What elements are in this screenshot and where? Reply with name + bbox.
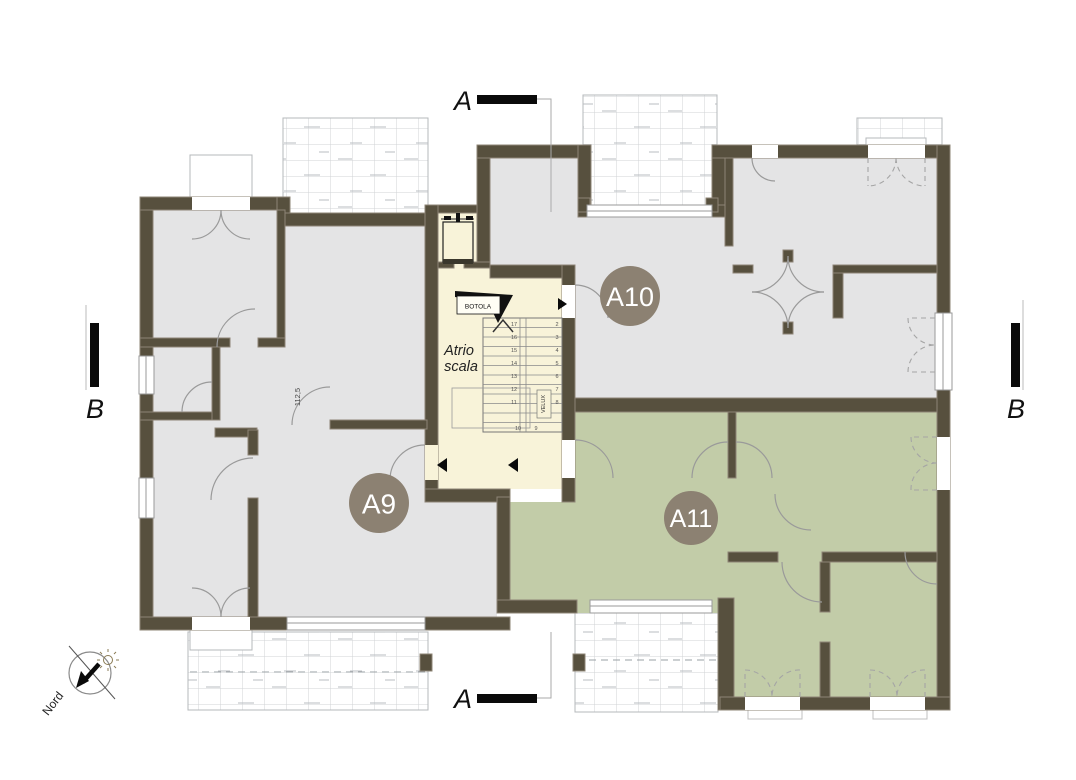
section-a-bottom-bar (477, 694, 537, 703)
svg-text:2: 2 (555, 322, 558, 328)
svg-text:4: 4 (555, 348, 558, 354)
svg-text:15: 15 (511, 348, 517, 354)
terrace-bottom-right (575, 613, 718, 712)
svg-text:6: 6 (555, 374, 558, 380)
botola-label: BOTOLA (465, 304, 492, 311)
elevator-door-mark-center (456, 213, 460, 222)
north-compass-icon: Nord (39, 646, 119, 718)
svg-text:16: 16 (511, 335, 517, 341)
svg-text:11: 11 (511, 400, 517, 406)
svg-text:13: 13 (511, 374, 517, 380)
section-b-right-bar (1011, 323, 1020, 387)
landing-top-left (190, 155, 252, 197)
a9-label: A9 (362, 489, 396, 520)
velux-label: VELUX (541, 395, 547, 413)
landing-bottom-right-1 (748, 710, 802, 719)
svg-text:14: 14 (511, 361, 517, 367)
section-a-top-bar (477, 95, 537, 104)
terrace-top-middle (583, 95, 717, 207)
svg-text:7: 7 (555, 387, 558, 393)
section-b-right-label: B (1007, 394, 1025, 424)
svg-text:5: 5 (555, 361, 558, 367)
atrio-scala-label: Atrio scala (443, 343, 478, 375)
landing-bottom-left (190, 630, 252, 650)
floor-plan-svg: BOTOLA VELUX 17 16 15 14 13 12 11 2 3 4 … (0, 0, 1076, 780)
section-a-bottom-label: A (452, 684, 472, 714)
floor-plan-canvas: BOTOLA VELUX 17 16 15 14 13 12 11 2 3 4 … (0, 0, 1076, 780)
dimension-112-5: 112,5 (293, 388, 302, 406)
room-fills (153, 158, 937, 697)
terrace-top-left (283, 118, 428, 213)
svg-text:12: 12 (511, 387, 517, 393)
elevator-door-mark-left (444, 216, 451, 220)
section-b-left-label: B (86, 394, 104, 424)
a11-label: A11 (670, 505, 713, 533)
section-a-top-label: A (452, 86, 472, 116)
north-label: Nord (39, 689, 66, 718)
sun-icon (97, 649, 119, 671)
svg-text:9: 9 (534, 426, 537, 432)
svg-text:17: 17 (511, 322, 517, 328)
elevator-door-mark-right (466, 216, 473, 220)
section-b-left-bar (90, 323, 99, 387)
a10-label: A10 (606, 282, 654, 312)
svg-text:8: 8 (555, 400, 558, 406)
svg-text:10: 10 (515, 426, 521, 432)
landing-bottom-right-2 (873, 710, 927, 719)
svg-text:3: 3 (555, 335, 558, 341)
north-arrowhead (76, 671, 89, 688)
